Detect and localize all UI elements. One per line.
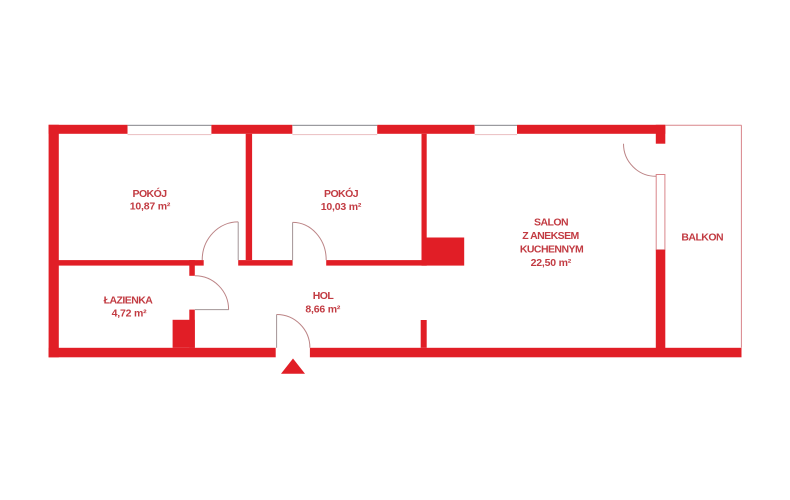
svg-text:ŁAZIENKA: ŁAZIENKA [104, 294, 154, 306]
svg-text:Z ANEKSEM: Z ANEKSEM [522, 230, 579, 242]
svg-text:POKÓJ: POKÓJ [132, 187, 167, 200]
svg-text:10,87 m²: 10,87 m² [130, 200, 171, 212]
svg-text:POKÓJ: POKÓJ [324, 187, 359, 200]
svg-text:22,50 m²: 22,50 m² [531, 257, 572, 269]
svg-text:KUCHENNYM: KUCHENNYM [520, 244, 584, 256]
svg-text:10,03 m²: 10,03 m² [321, 201, 362, 213]
svg-text:4,72 m²: 4,72 m² [112, 308, 147, 320]
svg-text:SALON: SALON [534, 216, 568, 228]
svg-text:BALKON: BALKON [681, 232, 723, 244]
svg-text:HOL: HOL [313, 290, 335, 302]
svg-text:8,66 m²: 8,66 m² [305, 303, 340, 315]
